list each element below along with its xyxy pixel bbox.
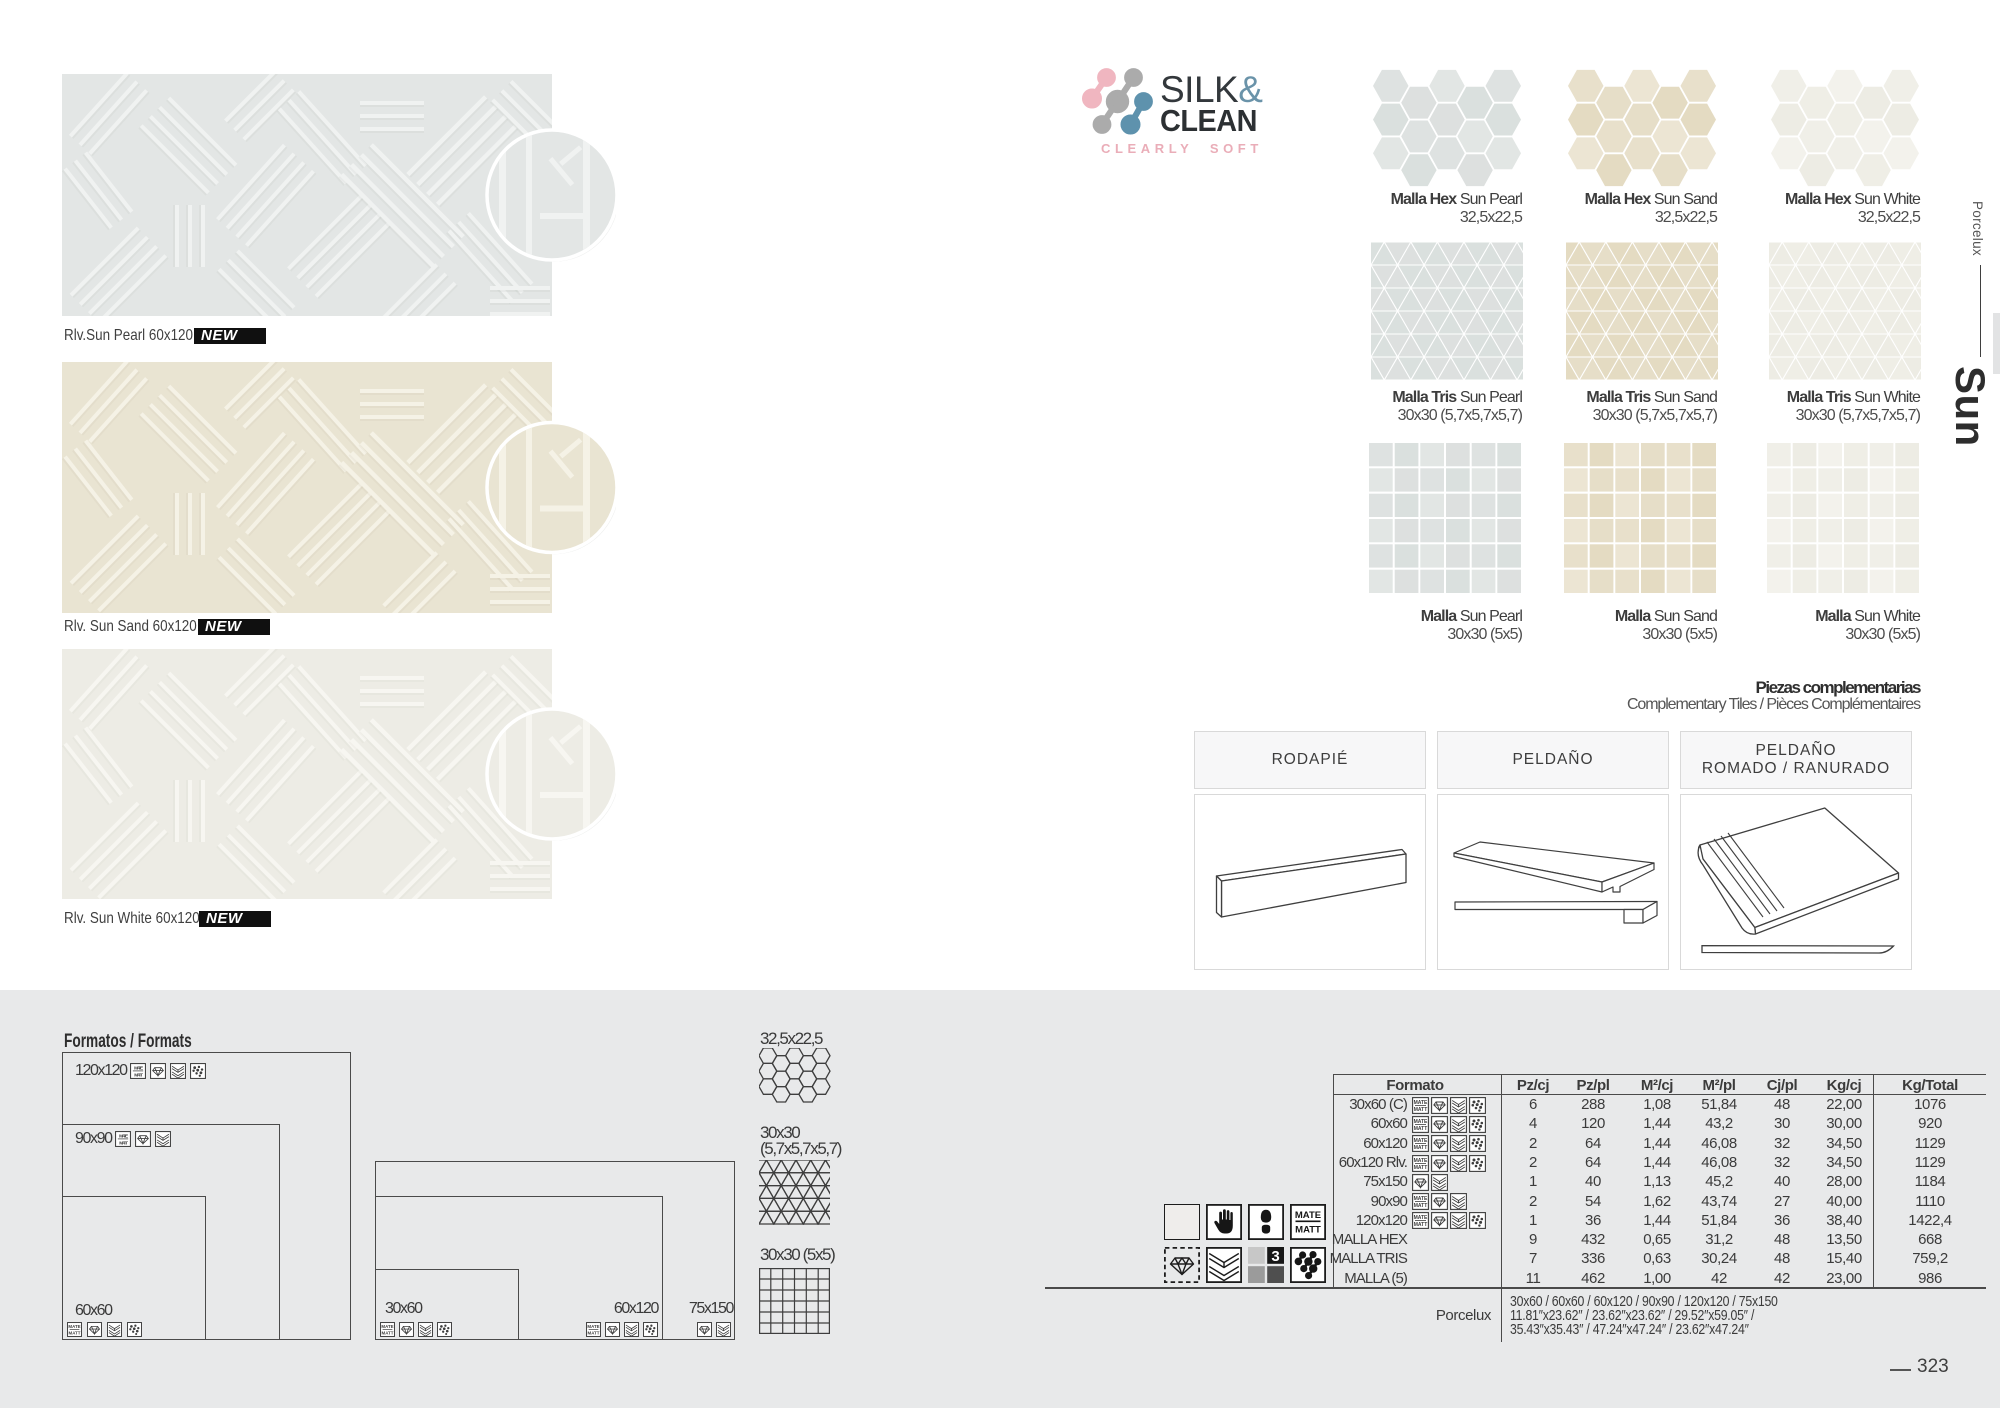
svg-text:MATE: MATE (119, 1133, 128, 1138)
svg-text:MATT: MATT (69, 1331, 81, 1336)
svg-text:MATT: MATT (1414, 1145, 1428, 1151)
svg-text:MATT: MATT (1414, 1203, 1428, 1209)
svg-text:MATE: MATE (68, 1324, 80, 1329)
svg-text:MATE: MATE (587, 1324, 599, 1329)
svg-text:MATT: MATT (1414, 1165, 1428, 1171)
svg-text:MATT: MATT (1414, 1223, 1428, 1229)
svg-text:MATE: MATE (381, 1324, 393, 1329)
svg-text:MATE: MATE (134, 1065, 143, 1070)
svg-text:MATT: MATT (382, 1331, 394, 1336)
svg-text:MATT: MATT (1414, 1107, 1428, 1113)
svg-text:MATT: MATT (1414, 1126, 1428, 1132)
svg-text:MATT: MATT (588, 1331, 600, 1336)
